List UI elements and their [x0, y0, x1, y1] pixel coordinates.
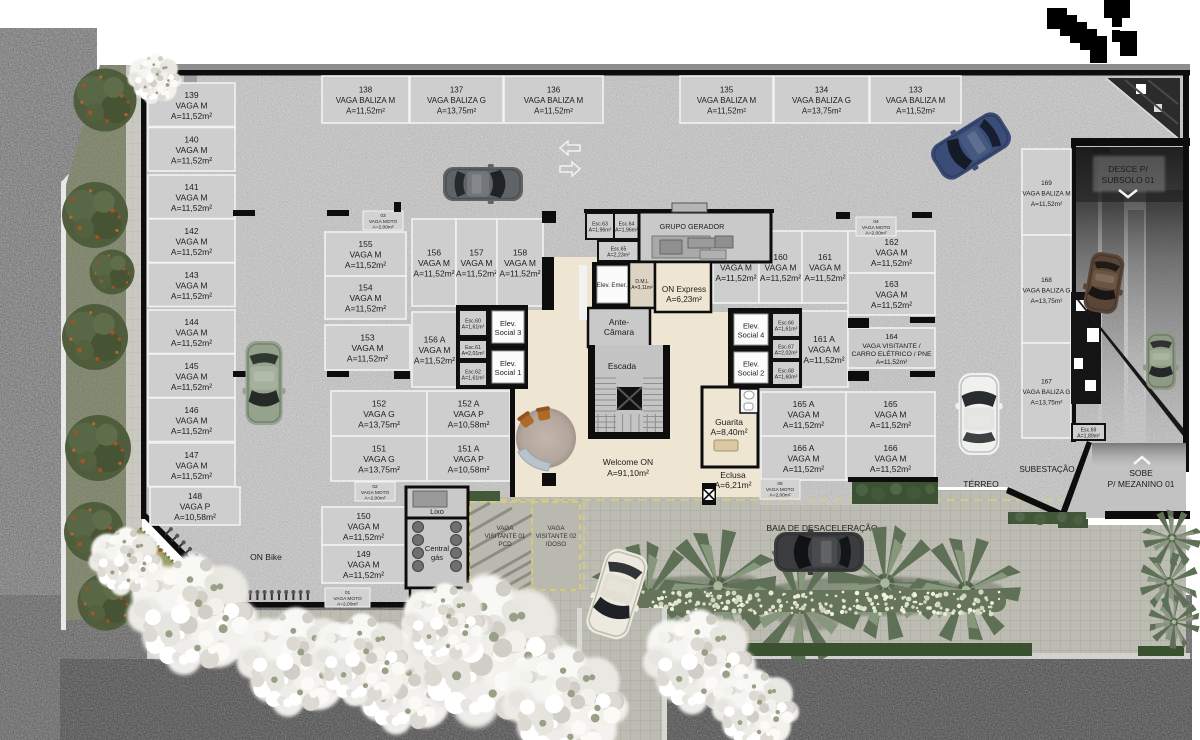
svg-text:A=11,52m²: A=11,52m²: [1031, 201, 1063, 208]
svg-text:VAGA M: VAGA M: [348, 560, 380, 570]
svg-text:158: 158: [513, 248, 527, 258]
svg-text:A=1,61m²: A=1,61m²: [775, 327, 798, 333]
svg-text:133: 133: [909, 86, 923, 95]
svg-text:A=11,52m²: A=11,52m²: [783, 420, 824, 430]
svg-text:149: 149: [356, 549, 370, 559]
svg-text:01: 01: [345, 590, 351, 596]
svg-text:Ante-: Ante-: [609, 317, 629, 327]
svg-text:A=8,40m²: A=8,40m²: [710, 427, 747, 437]
svg-text:VAGA MOTO: VAGA MOTO: [361, 490, 390, 496]
svg-text:VAGA M: VAGA M: [350, 293, 382, 303]
svg-text:VAGA M: VAGA M: [176, 280, 208, 290]
svg-text:A=11,52m²: A=11,52m²: [171, 291, 212, 301]
svg-text:VAGA M: VAGA M: [348, 522, 380, 532]
svg-text:VAGA P: VAGA P: [453, 409, 484, 419]
svg-text:ON Bike: ON Bike: [250, 552, 282, 562]
svg-text:05: 05: [777, 481, 783, 487]
svg-text:A=11,52m²: A=11,52m²: [171, 203, 212, 213]
svg-text:VAGA MOTO: VAGA MOTO: [369, 219, 398, 225]
svg-text:A=11,52m²: A=11,52m²: [346, 107, 385, 116]
svg-text:Central: Central: [425, 544, 450, 553]
svg-text:VAGA P: VAGA P: [180, 502, 211, 512]
svg-text:Social 4: Social 4: [738, 331, 765, 340]
svg-text:VAGA M: VAGA M: [788, 410, 820, 420]
svg-text:A=11,52m²: A=11,52m²: [171, 111, 212, 121]
svg-text:134: 134: [815, 86, 829, 95]
svg-text:Elev.: Elev.: [500, 319, 516, 328]
svg-text:A=1,61m²: A=1,61m²: [462, 376, 485, 382]
svg-text:A=11,52m²: A=11,52m²: [871, 258, 912, 268]
svg-text:136: 136: [547, 86, 561, 95]
svg-text:140: 140: [184, 134, 198, 144]
svg-text:147: 147: [184, 450, 198, 460]
svg-text:A=6,23m²: A=6,23m²: [666, 295, 702, 304]
svg-text:VAGA M: VAGA M: [876, 248, 908, 258]
svg-text:146: 146: [184, 405, 198, 415]
svg-text:A=11,52m²: A=11,52m²: [803, 355, 844, 365]
svg-text:A=1,61m²: A=1,61m²: [462, 325, 485, 331]
svg-text:VAGA M: VAGA M: [176, 460, 208, 470]
svg-text:VAGA: VAGA: [547, 525, 565, 532]
svg-text:161: 161: [818, 252, 832, 262]
svg-text:VAGA M: VAGA M: [176, 145, 208, 155]
svg-text:VAGA MOTO: VAGA MOTO: [333, 596, 362, 602]
svg-text:168: 168: [1041, 277, 1052, 284]
svg-text:VAGA M: VAGA M: [352, 343, 384, 353]
svg-text:A=11,52m²: A=11,52m²: [343, 532, 384, 542]
svg-text:Escada: Escada: [608, 361, 637, 371]
svg-text:CARRO ELÉTRICO / PNE: CARRO ELÉTRICO / PNE: [851, 349, 932, 358]
svg-text:156 A: 156 A: [424, 335, 446, 345]
svg-text:166: 166: [883, 443, 897, 453]
svg-text:145: 145: [184, 361, 198, 371]
svg-text:VAGA M: VAGA M: [419, 345, 451, 355]
svg-text:A=11,52m²: A=11,52m²: [171, 471, 212, 481]
svg-text:VAGA M: VAGA M: [876, 290, 908, 300]
svg-text:A=11,52m²: A=11,52m²: [870, 420, 911, 430]
svg-text:04: 04: [873, 219, 879, 225]
svg-text:VAGA M: VAGA M: [808, 345, 840, 355]
svg-text:A=2,00m²: A=2,00m²: [866, 231, 887, 237]
svg-text:A=2,00m²: A=2,00m²: [373, 225, 394, 231]
svg-text:Elev.: Elev.: [500, 359, 516, 368]
svg-text:VAGA P: VAGA P: [453, 454, 484, 464]
svg-text:A=11,52m²: A=11,52m²: [171, 382, 212, 392]
svg-text:A=13,75m²: A=13,75m²: [1031, 298, 1064, 305]
svg-text:SUBSOLO 01: SUBSOLO 01: [1102, 175, 1155, 185]
svg-text:150: 150: [356, 511, 370, 521]
svg-text:138: 138: [359, 86, 373, 95]
svg-text:VAGA M: VAGA M: [350, 250, 382, 260]
svg-text:137: 137: [450, 86, 464, 95]
svg-text:Câmara: Câmara: [604, 327, 635, 337]
svg-text:143: 143: [184, 270, 198, 280]
svg-text:VAGA BALIZA M: VAGA BALIZA M: [697, 96, 757, 105]
svg-text:139: 139: [184, 90, 198, 100]
svg-text:167: 167: [1041, 379, 1052, 386]
svg-text:A=11,52m²: A=11,52m²: [171, 426, 212, 436]
svg-text:A=10,58m²: A=10,58m²: [174, 512, 216, 522]
svg-text:135: 135: [720, 86, 734, 95]
svg-text:P/ MEZANINO 01: P/ MEZANINO 01: [1107, 479, 1174, 489]
svg-text:VAGA M: VAGA M: [720, 263, 752, 273]
svg-text:A=13,75m²: A=13,75m²: [358, 420, 400, 430]
svg-text:A=2,00m²: A=2,00m²: [337, 602, 358, 608]
svg-text:A=11,52m²: A=11,52m²: [871, 300, 912, 310]
svg-text:Guarita: Guarita: [715, 417, 743, 427]
svg-text:A=13,75m²: A=13,75m²: [802, 107, 842, 116]
svg-text:A=11,52m²: A=11,52m²: [499, 269, 540, 279]
svg-text:A=11,52m²: A=11,52m²: [456, 269, 497, 279]
svg-text:142: 142: [184, 226, 198, 236]
svg-text:VAGA BALIZA G: VAGA BALIZA G: [792, 96, 851, 105]
svg-text:VAGA BALIZA M: VAGA BALIZA M: [1022, 191, 1070, 198]
svg-text:A=11,52m²: A=11,52m²: [760, 273, 801, 283]
svg-text:154: 154: [358, 283, 372, 293]
svg-text:A=11,52m²: A=11,52m²: [534, 107, 573, 116]
svg-text:VAGA M: VAGA M: [809, 263, 841, 273]
svg-text:VAGA M: VAGA M: [875, 454, 907, 464]
svg-text:VAGA BALIZA M: VAGA BALIZA M: [524, 96, 584, 105]
svg-text:A=11,52m²: A=11,52m²: [347, 354, 388, 364]
svg-text:VAGA G: VAGA G: [363, 454, 395, 464]
svg-text:A=11,52m²: A=11,52m²: [171, 155, 212, 165]
svg-text:Welcome ON: Welcome ON: [603, 457, 653, 467]
svg-text:GRUPO GERADOR: GRUPO GERADOR: [660, 222, 725, 231]
svg-text:gás: gás: [431, 553, 443, 562]
svg-text:A=6,21m²: A=6,21m²: [714, 480, 751, 490]
svg-text:VAGA G: VAGA G: [363, 409, 395, 419]
svg-text:Social 3: Social 3: [495, 328, 522, 337]
svg-text:VAGA M: VAGA M: [176, 100, 208, 110]
svg-text:A=3,11m²: A=3,11m²: [631, 285, 653, 291]
svg-text:144: 144: [184, 317, 198, 327]
svg-text:151: 151: [372, 444, 386, 454]
svg-text:IDOSO: IDOSO: [546, 541, 566, 548]
svg-text:PCD: PCD: [498, 541, 512, 548]
svg-text:156: 156: [427, 248, 441, 258]
svg-text:02: 02: [372, 484, 378, 490]
svg-text:DESCE P/: DESCE P/: [1108, 164, 1148, 174]
svg-text:A=11,52m²: A=11,52m²: [171, 247, 212, 257]
svg-text:A=11,52m²: A=11,52m²: [414, 356, 455, 366]
svg-text:Elev. Emer.: Elev. Emer.: [597, 283, 628, 289]
svg-text:A=11,52m²: A=11,52m²: [876, 359, 908, 366]
svg-text:VAGA M: VAGA M: [176, 415, 208, 425]
svg-text:A=2,01m²: A=2,01m²: [462, 351, 485, 357]
svg-text:153: 153: [360, 333, 374, 343]
svg-text:VAGA M: VAGA M: [176, 192, 208, 202]
svg-text:A=11,52m²: A=11,52m²: [345, 304, 386, 314]
svg-text:151 A: 151 A: [458, 444, 480, 454]
svg-text:A=11,52m²: A=11,52m²: [343, 570, 384, 580]
svg-text:TÉRREO: TÉRREO: [963, 479, 999, 489]
svg-text:VISITANTE 02: VISITANTE 02: [536, 533, 577, 540]
svg-text:A=2,23m²: A=2,23m²: [607, 253, 630, 259]
svg-text:VAGA M: VAGA M: [875, 410, 907, 420]
svg-text:A=2,00m²: A=2,00m²: [770, 493, 791, 499]
svg-text:VAGA M: VAGA M: [788, 454, 820, 464]
svg-text:VAGA BALIZA G: VAGA BALIZA G: [1023, 288, 1071, 295]
svg-text:A=1,96m²: A=1,96m²: [615, 228, 638, 234]
svg-text:VAGA BALIZA M: VAGA BALIZA M: [336, 96, 396, 105]
svg-text:VAGA BALIZA G: VAGA BALIZA G: [1023, 389, 1071, 396]
svg-text:141: 141: [184, 182, 198, 192]
svg-text:A=1,96m²: A=1,96m²: [589, 228, 612, 234]
svg-text:A=2,00m²: A=2,00m²: [365, 496, 386, 502]
svg-text:A=11,52m²: A=11,52m²: [783, 464, 824, 474]
svg-text:152: 152: [372, 399, 386, 409]
svg-text:VAGA M: VAGA M: [418, 258, 450, 268]
svg-text:03: 03: [380, 213, 386, 219]
svg-text:161 A: 161 A: [813, 334, 835, 344]
svg-text:VAGA M: VAGA M: [765, 263, 797, 273]
svg-text:VAGA MOTO: VAGA MOTO: [862, 225, 891, 231]
svg-text:157: 157: [469, 248, 483, 258]
svg-text:VAGA: VAGA: [496, 525, 514, 532]
svg-text:VAGA M: VAGA M: [176, 327, 208, 337]
svg-text:A=11,52m²: A=11,52m²: [870, 464, 911, 474]
svg-text:Social 2: Social 2: [738, 369, 765, 378]
svg-text:A=10,58m²: A=10,58m²: [448, 420, 490, 430]
svg-text:A=13,75m²: A=13,75m²: [1031, 400, 1064, 407]
svg-text:SUBESTAÇÃO: SUBESTAÇÃO: [1019, 464, 1074, 474]
svg-text:160: 160: [773, 252, 787, 262]
svg-text:Social 1: Social 1: [495, 368, 522, 377]
svg-text:164: 164: [885, 332, 898, 341]
svg-text:A=11,52m²: A=11,52m²: [804, 273, 845, 283]
svg-text:A=2,02m²: A=2,02m²: [775, 351, 798, 357]
svg-text:A=10,58m²: A=10,58m²: [448, 465, 490, 475]
svg-text:Elev.: Elev.: [743, 322, 759, 331]
svg-text:166 A: 166 A: [793, 443, 815, 453]
svg-text:A=13,75m²: A=13,75m²: [437, 107, 477, 116]
svg-text:BAIA DE DESACELERAÇÃO: BAIA DE DESACELERAÇÃO: [766, 523, 877, 533]
svg-text:155: 155: [358, 239, 372, 249]
svg-text:Elev.: Elev.: [743, 360, 759, 369]
svg-text:VAGA MOTO: VAGA MOTO: [766, 487, 795, 493]
svg-text:VAGA BALIZA G: VAGA BALIZA G: [427, 96, 486, 105]
svg-text:A=13,75m²: A=13,75m²: [358, 465, 400, 475]
svg-text:VAGA M: VAGA M: [461, 258, 493, 268]
svg-text:A=11,52m²: A=11,52m²: [707, 107, 746, 116]
svg-text:Lixo: Lixo: [430, 507, 444, 516]
svg-text:A=11,52m²: A=11,52m²: [715, 273, 756, 283]
svg-text:152 A: 152 A: [458, 399, 480, 409]
svg-text:Eclusa: Eclusa: [720, 470, 746, 480]
svg-text:SOBE: SOBE: [1129, 468, 1153, 478]
svg-text:A=1,60m²: A=1,60m²: [775, 375, 798, 381]
svg-text:169: 169: [1041, 180, 1052, 187]
svg-text:VAGA M: VAGA M: [176, 236, 208, 246]
svg-text:163: 163: [884, 279, 898, 289]
svg-text:VAGA M: VAGA M: [176, 371, 208, 381]
svg-text:ON Express: ON Express: [662, 285, 706, 294]
svg-text:A=1,89m²: A=1,89m²: [1077, 434, 1100, 440]
svg-text:165: 165: [883, 399, 897, 409]
svg-text:VAGA M: VAGA M: [504, 258, 536, 268]
svg-text:A=11,52m²: A=11,52m²: [345, 260, 386, 270]
svg-text:VAGA VISITANTE /: VAGA VISITANTE /: [862, 343, 920, 350]
svg-text:162: 162: [884, 237, 898, 247]
svg-text:VAGA BALIZA M: VAGA BALIZA M: [886, 96, 946, 105]
svg-text:A=11,52m²: A=11,52m²: [171, 338, 212, 348]
svg-text:A=11,52m²: A=11,52m²: [896, 107, 935, 116]
svg-text:A=11,52m²: A=11,52m²: [413, 269, 454, 279]
svg-text:148: 148: [188, 491, 202, 501]
svg-text:A=91,10m²: A=91,10m²: [607, 468, 649, 478]
svg-text:VISITANTE 01: VISITANTE 01: [485, 533, 526, 540]
svg-text:165 A: 165 A: [793, 399, 815, 409]
